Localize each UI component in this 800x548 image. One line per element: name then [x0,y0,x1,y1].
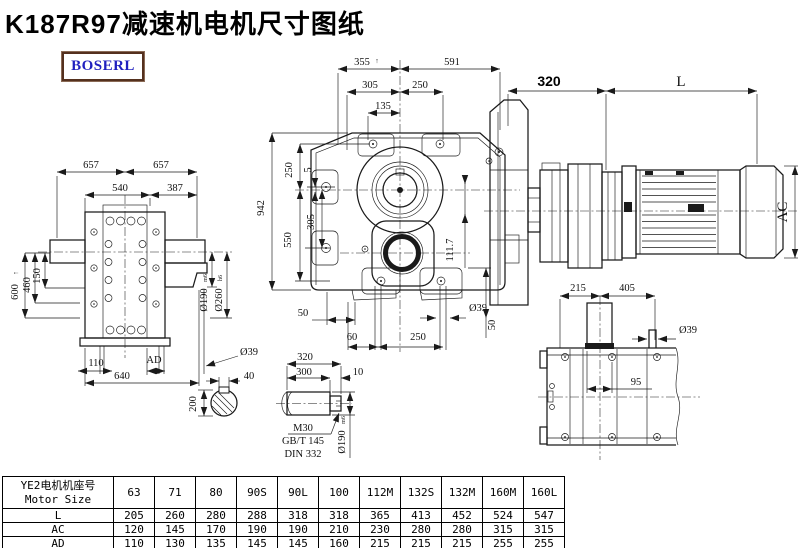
dim-dia39-top-view: Ø39 [679,325,697,336]
drawing-sheet: K187R97减速机电机尺寸图纸 BOSERL [0,0,800,548]
dimension-value: 280 [196,509,237,523]
dimension-value: 205 [114,509,155,523]
dimension-value: 145 [278,537,319,548]
dim-50-left: 50 [298,308,309,319]
dimension-value: 210 [319,523,360,537]
dimension-value: 190 [237,523,278,537]
dim-dia260: Ø260 [214,288,225,311]
table-row: L205260280288318318365413452524547 [3,509,565,523]
dim-300: 300 [296,367,312,378]
dimension-value: 365 [360,509,401,523]
dimension-value: 160 [319,537,360,548]
dimension-value: 135 [196,537,237,548]
dim-dia39-front: Ø39 [469,303,487,314]
dimension-value: 255 [483,537,524,548]
dimension-value: 280 [442,523,483,537]
dimension-value: 547 [524,509,565,523]
shaft-detail: 40 200 320 300 10 [188,352,363,460]
dimension-value: 190 [278,523,319,537]
dimension-value: 413 [401,509,442,523]
dim-50-right: 50 [487,320,498,331]
dimension-value: 230 [360,523,401,537]
dim-200: 200 [188,396,199,412]
dim-L: L [676,74,685,90]
dimension-value: 215 [360,537,401,548]
dim-355-mark: ↑ [375,57,379,65]
dim-320-bold: 320 [537,73,561,89]
dim-shaft-320: 320 [297,352,313,363]
dimension-value: 215 [401,537,442,548]
dim-AC: AC [775,202,791,223]
dim-355: 355 [354,57,370,68]
dim-387: 387 [167,183,183,194]
dim-dia39-left-view: Ø39 [240,347,258,358]
dim-250-bottom: 250 [410,332,426,343]
dim-5: 5 [303,167,314,172]
dim-135: 135 [375,101,391,112]
table-row: AD110130135145145160215215215255255 [3,537,565,548]
motor-size-header-cn: YE2电机机座号 [3,479,113,493]
dimension-value: 145 [155,523,196,537]
dimension-value: 145 [237,537,278,548]
dim-305-left: 305 [306,214,317,230]
dim-10: 10 [353,367,364,378]
frame-size-column: 160M [483,477,524,509]
thread-standard-1: GB/T 145 [282,436,324,447]
table-header-row: YE2电机机座号Motor Size63718090S90L100112M132… [3,477,565,509]
dimension-value: 288 [237,509,278,523]
frame-size-column: 100 [319,477,360,509]
dim-60: 60 [347,332,358,343]
motor-size-header-en: Motor Size [3,493,113,507]
dim-657-right: 657 [153,160,169,171]
frame-size-column: 80 [196,477,237,509]
shaft-section-hatch [212,393,234,415]
dimension-value: 318 [278,509,319,523]
dimension-value: 110 [114,537,155,548]
dim-305-top: 305 [362,80,378,91]
front-view-gearbox: 355 ↑ 591 305 250 135 942 250 5 305 550 [256,57,520,352]
dim-657-left: 657 [83,160,99,171]
dimension-value: 315 [483,523,524,537]
dimension-value: 215 [442,537,483,548]
frame-size-column: 90S [237,477,278,509]
thread-callout: M30 [293,423,313,434]
dim-dia190-fit: m6 [203,274,209,282]
dimension-value: 120 [114,523,155,537]
dimension-value: 318 [319,509,360,523]
dim-110: 110 [88,358,103,369]
dim-shaft-dia190-fit: m6 [341,416,347,424]
dim-95: 95 [631,377,642,388]
top-view-gearbox: Ø39 95 [538,296,700,460]
dimension-value: 280 [401,523,442,537]
frame-size-column: 132M [442,477,483,509]
dim-405: 405 [619,283,635,294]
dim-dia190: Ø190 [199,288,210,311]
dim-600-mark: ↑ [12,271,20,275]
dim-942: 942 [256,200,267,216]
dimension-value: 260 [155,509,196,523]
frame-size-column: 132S [401,477,442,509]
dim-640: 640 [114,371,130,382]
row-label: L [3,509,114,523]
dim-550: 550 [283,232,294,248]
dim-150: 150 [32,268,43,284]
dim-111-7: 111.7 [445,239,456,262]
dim-250-left: 250 [284,162,295,178]
left-view-gearbox: 657 657 540 387 600 ↑ 460 150 110 [10,160,258,386]
row-label: AC [3,523,114,537]
dim-40: 40 [244,371,255,382]
side-view-motor-assembly: 320 L AC 215 405 [484,73,798,348]
dimension-value: 524 [483,509,524,523]
frame-size-column: 71 [155,477,196,509]
motor-size-table: YE2电机机座号Motor Size63718090S90L100112M132… [2,476,565,548]
dim-250-top: 250 [412,80,428,91]
dim-215: 215 [570,283,586,294]
frame-size-column: 90L [278,477,319,509]
dimension-value: 452 [442,509,483,523]
dimension-value: 255 [524,537,565,548]
table-row: AC120145170190190210230280280315315 [3,523,565,537]
row-label: AD [3,537,114,548]
dim-540: 540 [112,183,128,194]
frame-size-column: 112M [360,477,401,509]
frame-size-column: 160L [524,477,565,509]
dim-AD: AD [146,355,162,366]
dimension-value: 170 [196,523,237,537]
technical-drawing: 657 657 540 387 600 ↑ 460 150 110 [0,0,800,476]
dimension-value: 315 [524,523,565,537]
motor-size-header: YE2电机机座号Motor Size [3,477,114,509]
thread-standard-2: DIN 332 [284,449,321,460]
dim-dia260-fit: h6 [218,275,224,281]
dimension-value: 130 [155,537,196,548]
dim-600: 600 [10,284,21,300]
dim-591: 591 [444,57,460,68]
motor-cooling-fins [642,176,716,248]
dim-shaft-dia190: Ø190 [337,430,348,453]
frame-size-column: 63 [114,477,155,509]
